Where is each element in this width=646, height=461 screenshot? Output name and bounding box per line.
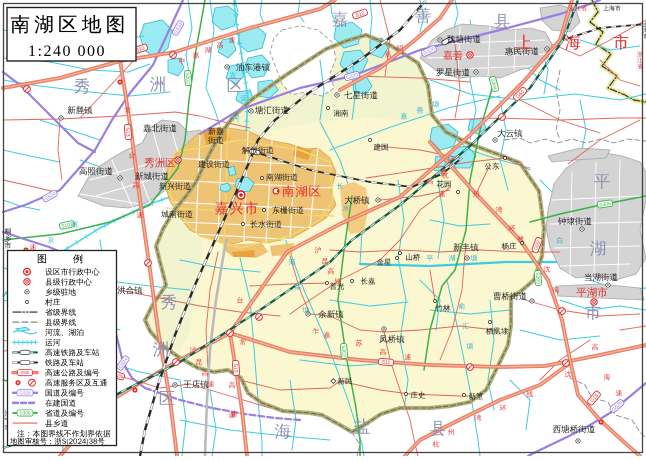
svg-text:G320: G320 <box>19 390 31 395</box>
svg-text:S13: S13 <box>124 127 131 137</box>
svg-text:S202: S202 <box>184 72 191 84</box>
svg-text:S11: S11 <box>381 359 390 366</box>
svg-text:S202: S202 <box>340 345 347 357</box>
svg-text:S203: S203 <box>534 272 541 284</box>
svg-text:1:240 000: 1:240 000 <box>28 43 106 60</box>
svg-text:G60: G60 <box>21 370 30 375</box>
svg-text:S306: S306 <box>20 411 31 416</box>
svg-text:S13: S13 <box>232 363 239 373</box>
